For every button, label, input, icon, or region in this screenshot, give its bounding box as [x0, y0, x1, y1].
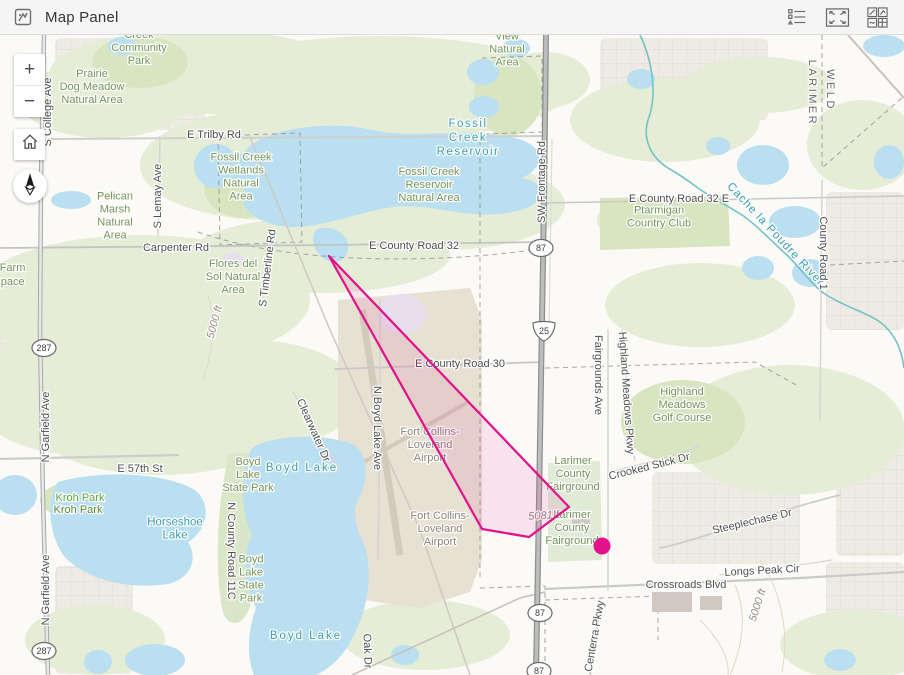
- map-label: N Garfield Ave: [40, 555, 52, 626]
- lake: [742, 256, 774, 280]
- lake: [84, 650, 112, 674]
- shield-number: 287: [36, 646, 51, 656]
- map-label: PtarmiganCountry Club: [627, 204, 691, 229]
- map-label: Kroh Park: [54, 504, 103, 516]
- map-label: N Garfield Ave: [40, 392, 52, 463]
- lake: [863, 35, 904, 57]
- us-route-shield: 87: [529, 240, 553, 257]
- map-label: WELD: [824, 69, 836, 111]
- shield-number: 87: [534, 666, 544, 675]
- zoom-in-button[interactable]: +: [14, 54, 45, 85]
- map-label: Fossil CreekReservoirNatural Area: [398, 166, 460, 204]
- map-label: Oak Dr: [361, 633, 374, 669]
- legend-icon[interactable]: [784, 4, 810, 30]
- street-grid: [826, 192, 904, 330]
- widget-grid-icon[interactable]: [864, 4, 890, 30]
- building: [652, 592, 692, 612]
- map-label: SW Frontage Rd: [536, 141, 548, 223]
- map-label: BoydLakeStatePark: [238, 553, 264, 604]
- lake: [51, 191, 91, 209]
- zoom-control: + −: [14, 54, 45, 117]
- map-label: Kroh Park: [56, 492, 105, 504]
- lake: [737, 145, 789, 185]
- map-label: Open Space: [0, 276, 25, 288]
- zoom-out-button[interactable]: −: [14, 86, 45, 117]
- home-icon: [21, 133, 39, 156]
- map-label: New Farm: [0, 262, 25, 274]
- map-label: Boyd Lake: [270, 630, 342, 642]
- map-panel-icon: [13, 7, 33, 27]
- us-route-shield: 87: [528, 605, 552, 622]
- map-label: E 57th St: [117, 463, 162, 475]
- lake: [469, 96, 499, 118]
- north-arrow-icon: [17, 171, 43, 202]
- map-label: HighlandMeadowsGolf Course: [653, 386, 712, 424]
- fullscreen-icon[interactable]: [824, 4, 850, 30]
- panel-header: Map Panel: [0, 0, 904, 35]
- us-route-shield: 287: [32, 643, 56, 660]
- shield-number: 287: [36, 343, 51, 353]
- map-label: N Boyd Lake Ave: [371, 386, 383, 470]
- us-route-shield: 87: [527, 663, 551, 675]
- point-marker[interactable]: [594, 538, 611, 555]
- map-label: Fairgrounds Ave: [592, 335, 604, 415]
- building: [700, 596, 722, 610]
- map-canvas[interactable]: CreekCommunityParkPrairieDog MeadowNatur…: [0, 35, 904, 675]
- map-label: E County Road 32 E: [629, 193, 729, 205]
- map-label: Crossroads Blvd: [646, 579, 727, 591]
- lake: [125, 644, 185, 675]
- map-label: S Lemay Ave: [152, 164, 164, 229]
- lake: [467, 59, 499, 85]
- map-label: N County Road 11C: [225, 502, 237, 600]
- map-label: County Road 1: [817, 216, 829, 289]
- map-label: E Trilby Rd: [187, 129, 241, 141]
- map-label: Boyd Lake: [266, 462, 338, 474]
- shield-number: 87: [536, 243, 546, 253]
- map-label: Carpenter Rd: [143, 242, 209, 254]
- lake: [874, 145, 904, 179]
- map-panel-app: Map Panel: [0, 0, 904, 675]
- home-button[interactable]: [14, 129, 45, 160]
- lake: [706, 137, 730, 155]
- shield-number: 87: [535, 608, 545, 618]
- compass-button[interactable]: [13, 169, 47, 203]
- basemap-svg[interactable]: CreekCommunityParkPrairieDog MeadowNatur…: [0, 35, 904, 675]
- panel-title: Map Panel: [45, 9, 119, 26]
- lake: [824, 649, 856, 671]
- us-route-shield: 287: [32, 340, 56, 357]
- map-label: LARIMER: [806, 60, 818, 126]
- shield-number: 25: [539, 326, 549, 336]
- map-label: E County Road 32: [369, 240, 459, 252]
